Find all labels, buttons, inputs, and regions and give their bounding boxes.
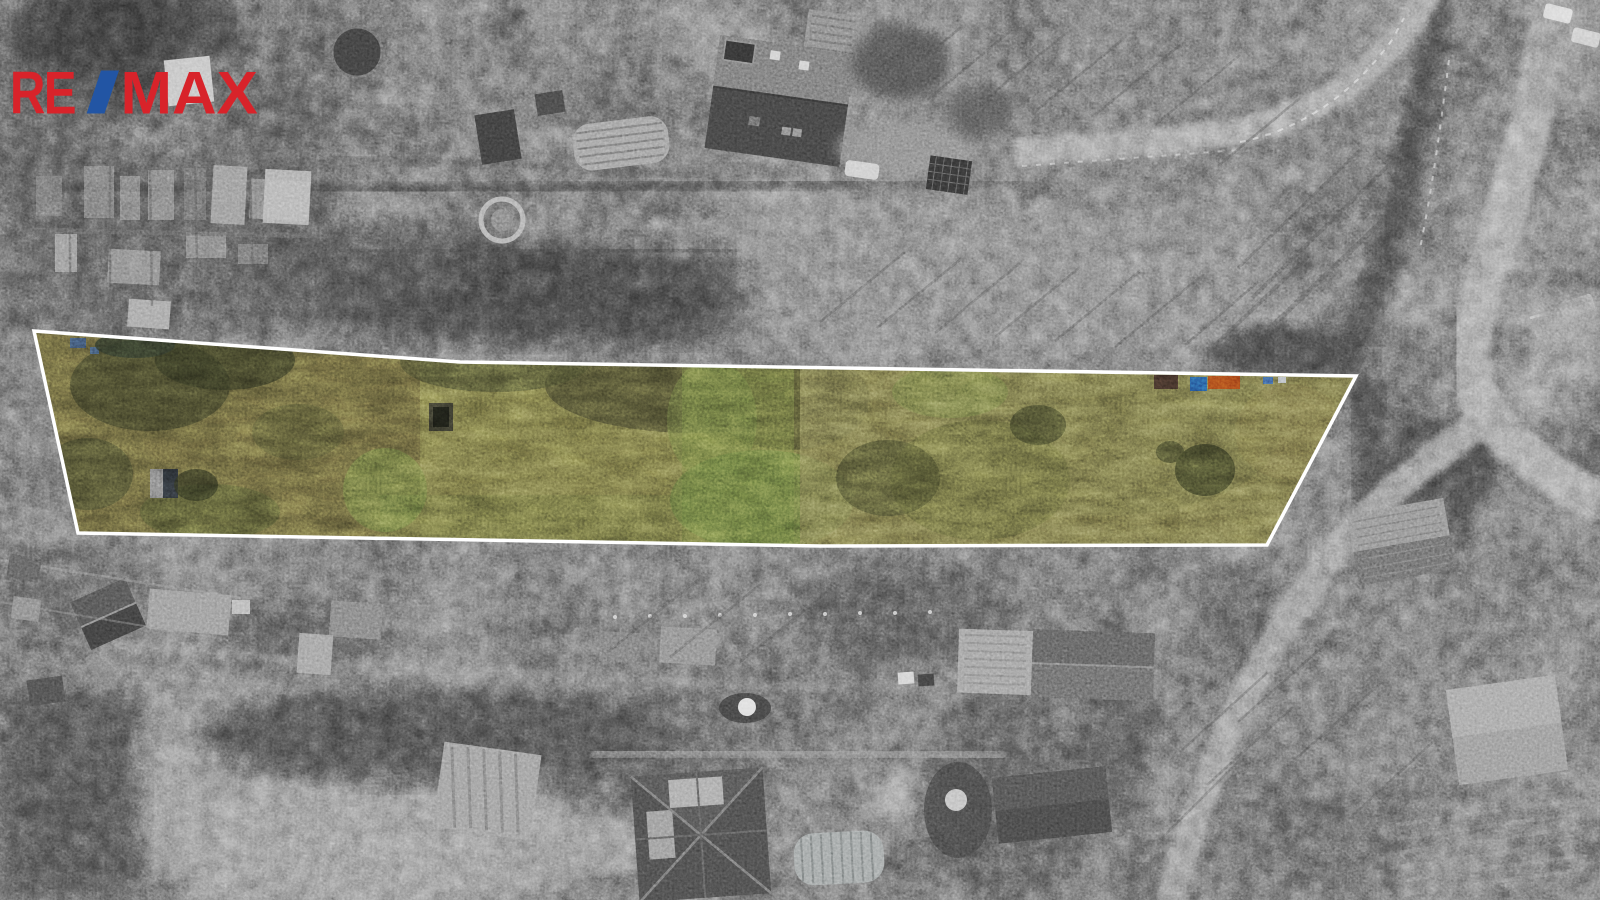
svg-text:RE: RE (10, 59, 75, 127)
svg-text:MAX: MAX (121, 59, 259, 126)
